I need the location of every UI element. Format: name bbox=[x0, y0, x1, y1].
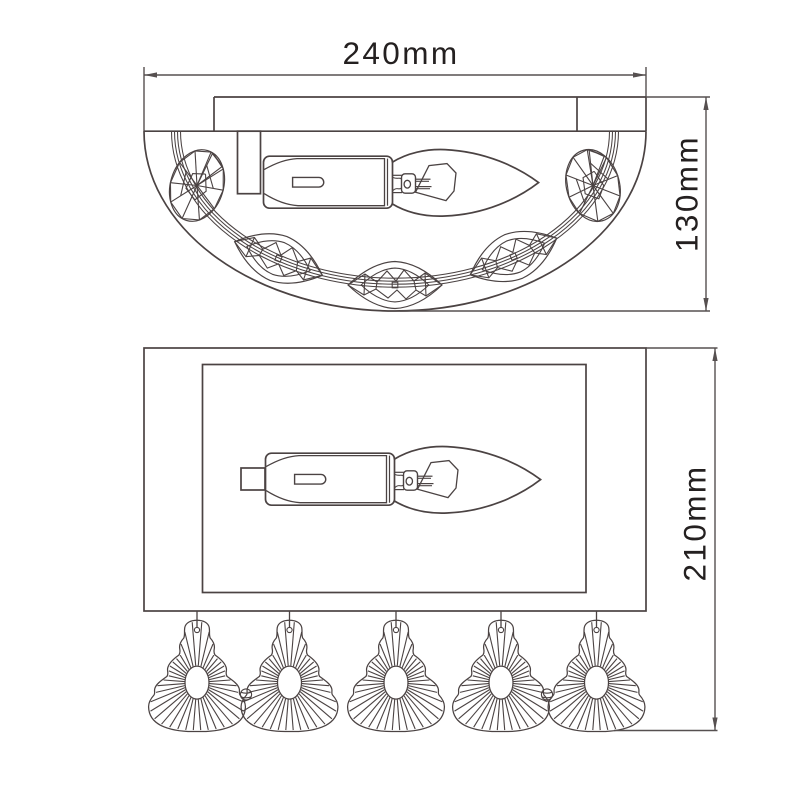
svg-text:240mm: 240mm bbox=[342, 35, 459, 71]
svg-text:210mm: 210mm bbox=[677, 464, 713, 581]
svg-text:130mm: 130mm bbox=[669, 135, 705, 252]
